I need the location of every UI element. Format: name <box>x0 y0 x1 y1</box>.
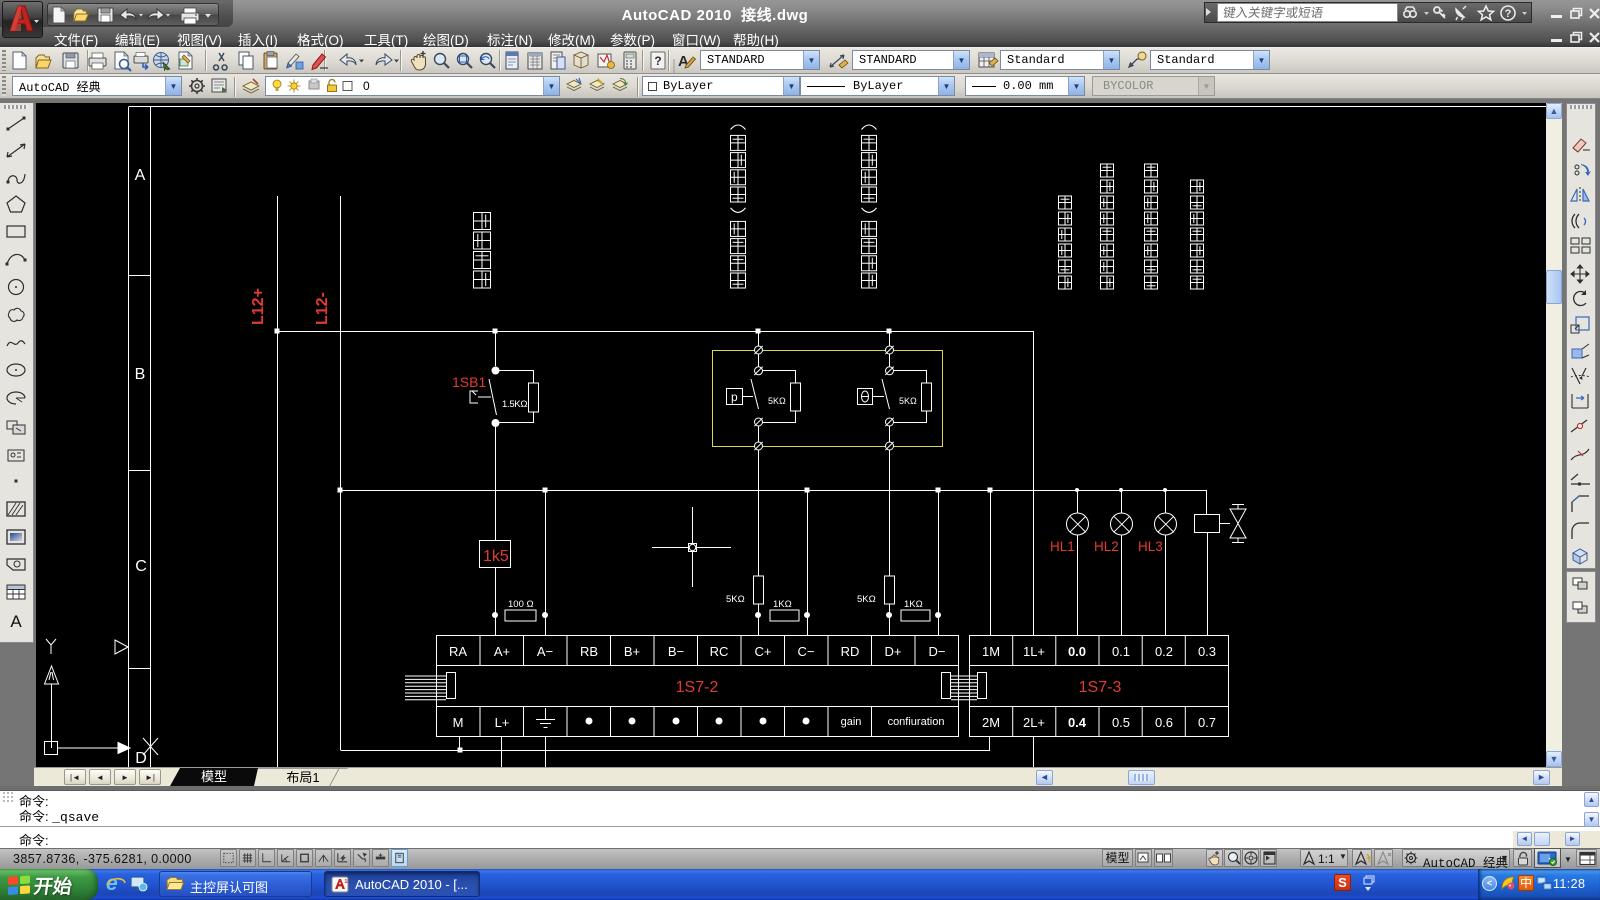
svg-text:1S7-2: 1S7-2 <box>676 679 719 696</box>
svg-text:100 Ω: 100 Ω <box>508 599 534 610</box>
svg-text:B: B <box>135 366 146 383</box>
svg-text:2L+: 2L+ <box>1023 715 1045 730</box>
svg-text:5KΩ: 5KΩ <box>857 594 876 605</box>
svg-text:confiuration: confiuration <box>888 716 945 728</box>
svg-text:5KΩ: 5KΩ <box>899 396 917 406</box>
svg-text:0.6: 0.6 <box>1155 715 1173 730</box>
svg-text:p: p <box>731 390 738 404</box>
svg-text:RB: RB <box>580 644 598 659</box>
svg-text:L12-: L12- <box>314 292 331 325</box>
svg-text:M: M <box>453 715 464 730</box>
svg-text:0.5: 0.5 <box>1112 715 1130 730</box>
svg-text:?: ? <box>654 54 661 68</box>
svg-text:A: A <box>10 612 22 631</box>
svg-text:B−: B− <box>668 644 684 659</box>
svg-text:?: ? <box>1505 8 1512 20</box>
svg-text:0.0: 0.0 <box>1068 644 1086 659</box>
svg-text:2M: 2M <box>982 715 1000 730</box>
svg-text:D−: D− <box>929 644 946 659</box>
svg-text:0.1: 0.1 <box>1112 644 1130 659</box>
svg-text:RA: RA <box>449 644 467 659</box>
svg-text:0.2: 0.2 <box>1155 644 1173 659</box>
svg-text:1S7-3: 1S7-3 <box>1079 679 1122 696</box>
svg-text:1.5KΩ: 1.5KΩ <box>502 399 527 410</box>
svg-text:10: 10 <box>345 879 350 885</box>
svg-text:1KΩ: 1KΩ <box>904 599 923 610</box>
svg-text:A−: A− <box>537 644 553 659</box>
svg-text:L12+: L12+ <box>250 288 267 325</box>
svg-text:gain: gain <box>841 716 862 728</box>
svg-text:RD: RD <box>841 644 860 659</box>
svg-text:A: A <box>135 167 146 184</box>
svg-text:B+: B+ <box>624 644 640 659</box>
svg-text:D+: D+ <box>885 644 902 659</box>
svg-text:1KΩ: 1KΩ <box>773 599 792 610</box>
svg-text:1k5: 1k5 <box>483 548 509 565</box>
svg-text:A+: A+ <box>494 644 510 659</box>
svg-text:HL3: HL3 <box>1138 539 1163 554</box>
svg-text:RC: RC <box>710 644 729 659</box>
svg-text:1SB1: 1SB1 <box>452 374 486 390</box>
svg-text:5KΩ: 5KΩ <box>726 594 745 605</box>
svg-text:L+: L+ <box>495 715 510 730</box>
svg-text:HL2: HL2 <box>1094 539 1119 554</box>
svg-text:1M: 1M <box>982 644 1000 659</box>
svg-text:C+: C+ <box>755 644 772 659</box>
svg-text:0.7: 0.7 <box>1198 715 1216 730</box>
svg-text:5KΩ: 5KΩ <box>768 396 786 406</box>
svg-text:HL1: HL1 <box>1050 539 1075 554</box>
svg-text:C−: C− <box>798 644 815 659</box>
svg-text:0.3: 0.3 <box>1198 644 1216 659</box>
svg-text:C: C <box>135 558 147 575</box>
svg-text:1L+: 1L+ <box>1023 644 1045 659</box>
svg-text:0.4: 0.4 <box>1068 715 1087 730</box>
